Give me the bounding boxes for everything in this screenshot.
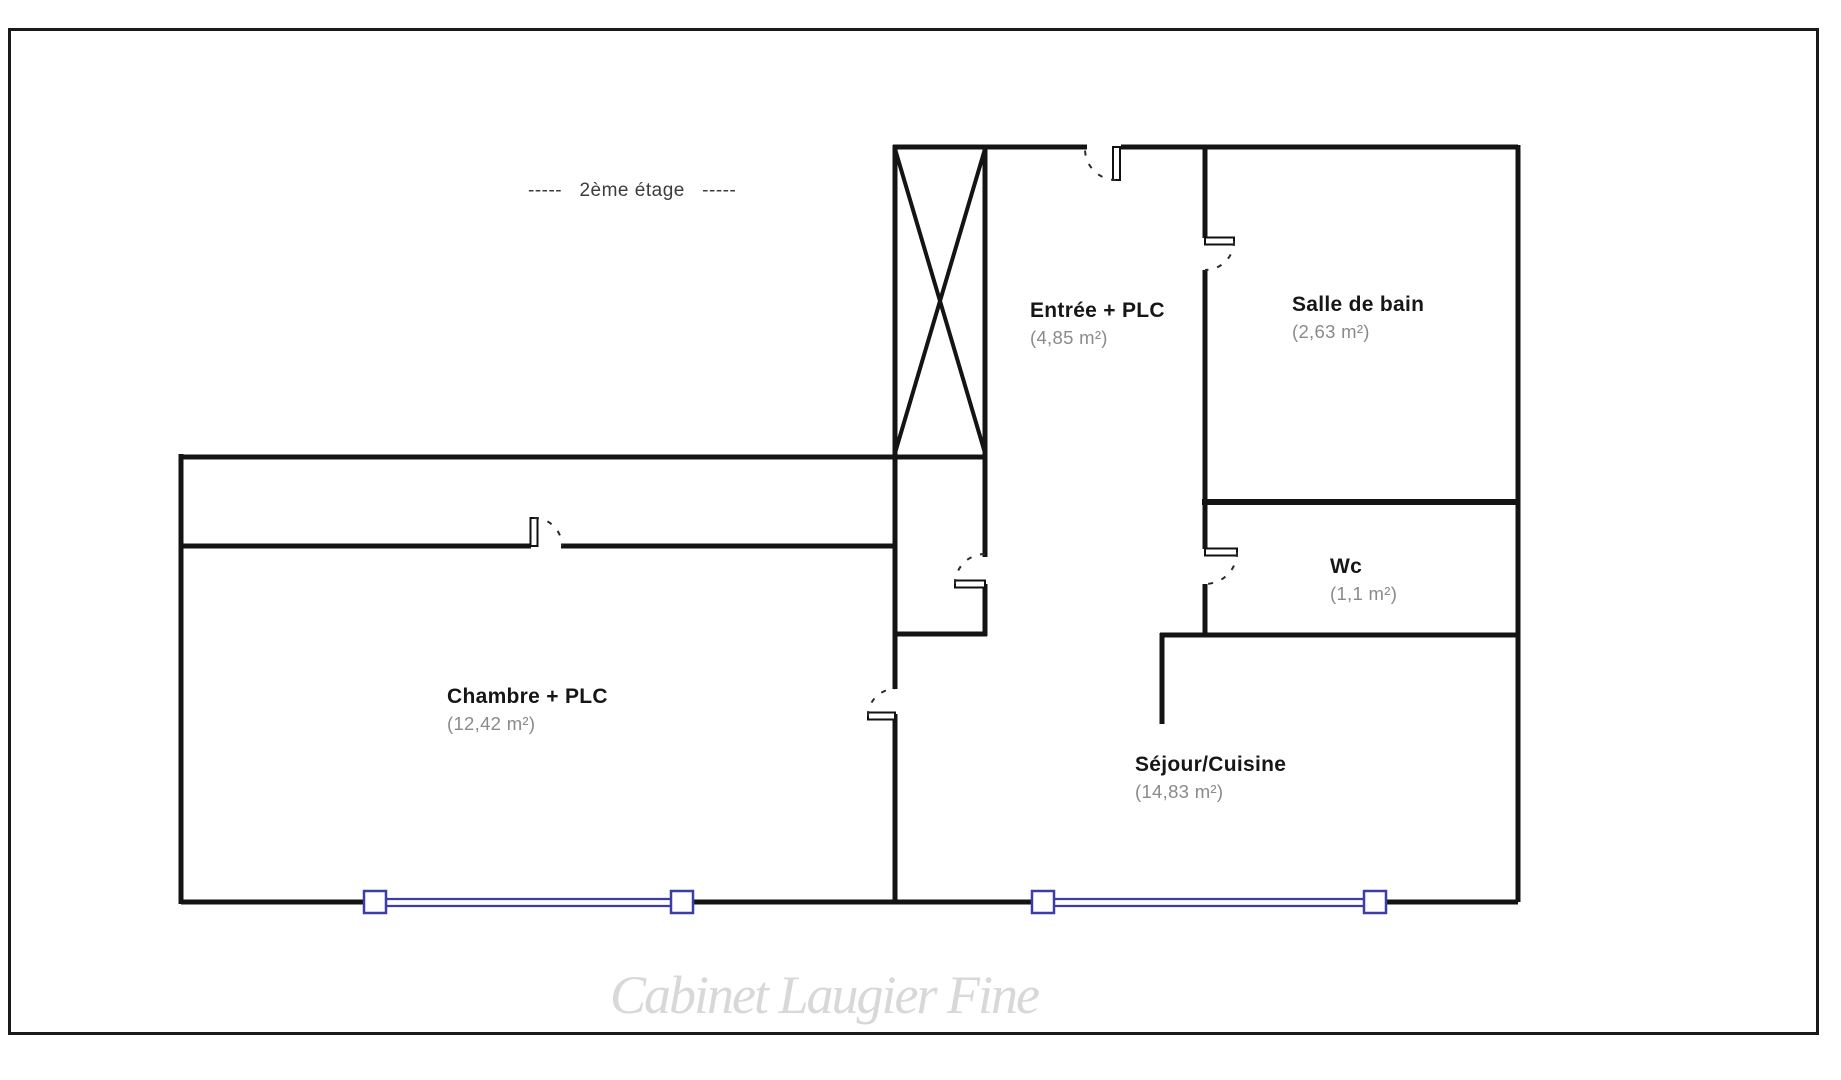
wc-door-swing-arc — [1205, 552, 1237, 584]
bedroom-closet-door-leaf — [531, 518, 538, 546]
entrance-door-swing-arc — [1085, 149, 1116, 180]
bathroom-door-leaf — [1205, 238, 1234, 245]
room-area: (12,42 m²) — [447, 715, 608, 734]
room-name: Wc — [1330, 556, 1397, 577]
room-label-entree: Entrée + PLC (4,85 m²) — [1030, 300, 1165, 348]
closet-door-leaf — [955, 581, 985, 588]
walls — [179, 145, 1520, 904]
room-name: Salle de bain — [1292, 294, 1424, 315]
room-label-wc: Wc (1,1 m²) — [1330, 556, 1397, 604]
floor-title: ----- 2ème étage ----- — [528, 180, 736, 202]
room-name: Séjour/Cuisine — [1135, 754, 1286, 775]
room-area: (1,1 m²) — [1330, 585, 1397, 604]
floor-plan-page: Cabinet Laugier Fine — [0, 0, 1841, 1080]
room-label-chambre: Chambre + PLC (12,42 m²) — [447, 686, 608, 734]
room-label-sejour-cuisine: Séjour/Cuisine (14,83 m²) — [1135, 754, 1286, 802]
window-end-post — [364, 891, 386, 913]
window-end-post — [1364, 891, 1386, 913]
entrance-door-leaf — [1113, 147, 1120, 180]
room-area: (4,85 m²) — [1030, 329, 1165, 348]
room-label-salle-de-bain: Salle de bain (2,63 m²) — [1292, 294, 1424, 342]
doors — [531, 147, 1238, 720]
room-name: Chambre + PLC — [447, 686, 608, 707]
room-area: (2,63 m²) — [1292, 323, 1424, 342]
room-area: (14,83 m²) — [1135, 783, 1286, 802]
page-border — [10, 30, 1818, 1034]
wall-lines — [179, 145, 1518, 904]
floor-plan-drawing — [0, 0, 1841, 1080]
staircase-shaft-x-icon — [895, 149, 985, 453]
wc-door-leaf — [1205, 549, 1237, 556]
window-end-post — [1032, 891, 1054, 913]
bedroom-door-leaf — [868, 713, 895, 720]
room-name: Entrée + PLC — [1030, 300, 1165, 321]
window-end-post — [671, 891, 693, 913]
